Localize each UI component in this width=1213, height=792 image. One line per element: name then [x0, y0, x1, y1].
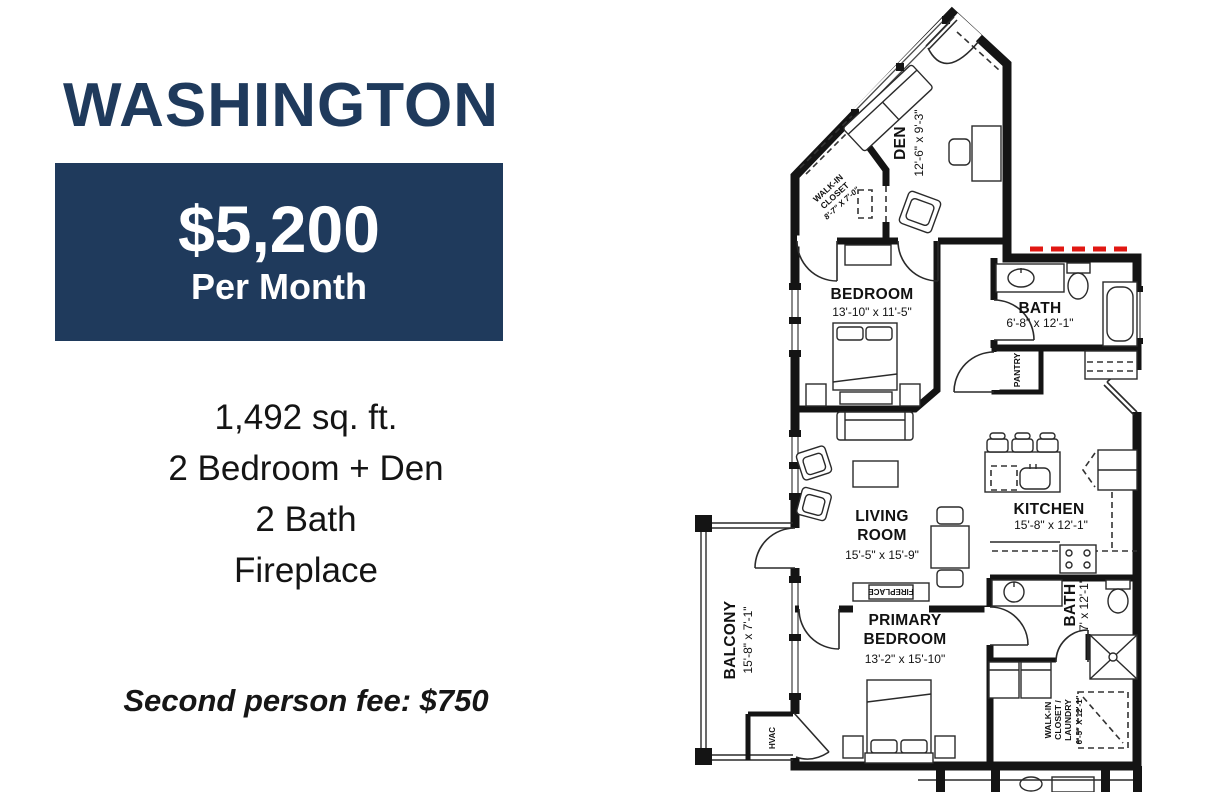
- coffee-table: [853, 461, 898, 487]
- laundry-closet-door: [1056, 630, 1088, 662]
- svg-text:15'-5" x 15'-9": 15'-5" x 15'-9": [845, 548, 919, 562]
- floor-plan: WALK-IN CLOSET 8'-7" X 7'-0" DEN 12'-6" …: [0, 0, 1213, 792]
- bedroom-bed: [833, 323, 897, 404]
- svg-text:WALK-IN: WALK-IN: [1043, 702, 1053, 739]
- svg-text:BALCONY: BALCONY: [722, 600, 739, 679]
- svg-text:LAUNDRY: LAUNDRY: [1063, 699, 1073, 741]
- balcony-door: [755, 528, 795, 568]
- primary-nightstand-right: [935, 736, 955, 758]
- bedroom-dresser: [845, 245, 891, 265]
- svg-text:CLOSET /: CLOSET /: [1053, 700, 1063, 740]
- primary-bedroom-label: PRIMARY BEDROOM 13'-2" x 15'-10": [863, 612, 946, 666]
- living-armchair-1: [795, 445, 832, 481]
- bath2-vanity: [992, 580, 1062, 606]
- washer-dryer: [989, 662, 1051, 698]
- svg-text:FIREPLACE: FIREPLACE: [868, 587, 914, 596]
- laundry-shelves: [1078, 692, 1128, 748]
- svg-text:LIVING: LIVING: [855, 508, 908, 525]
- kitchen-stools: [987, 433, 1058, 452]
- svg-text:15'-8" x 7'-1": 15'-8" x 7'-1": [741, 606, 755, 673]
- primary-nightstand-left: [843, 736, 863, 758]
- primary-bath-door: [990, 607, 1028, 645]
- bath1-toilet: [1067, 263, 1090, 299]
- bedroom-nightstand-left: [806, 384, 826, 406]
- bathtub: [1103, 282, 1137, 346]
- kitchen-label: KITCHEN 15'-8" x 12'-1": [1014, 501, 1088, 532]
- refrigerator: [1098, 450, 1137, 490]
- dining-table: [931, 507, 969, 587]
- stove: [1060, 545, 1096, 573]
- svg-text:15'-8" x 12'-1": 15'-8" x 12'-1": [1014, 518, 1088, 532]
- den-desk: [949, 126, 1001, 181]
- den-door: [898, 241, 938, 281]
- svg-text:BEDROOM: BEDROOM: [830, 286, 913, 303]
- wic-laundry-label: WALK-IN CLOSET / LAUNDRY 6'-5" X 12'-1": [1043, 695, 1084, 744]
- svg-text:KITCHEN: KITCHEN: [1014, 501, 1085, 518]
- walk-in-closet-label: WALK-IN CLOSET 8'-7" X 7'-0": [808, 169, 861, 221]
- svg-text:PANTRY: PANTRY: [1012, 353, 1022, 388]
- bedroom-nightstand-right: [900, 384, 920, 406]
- bath1-label: BATH 6'-8" x 12'-1": [1006, 300, 1073, 330]
- living-room-label: LIVING ROOM 15'-5" x 15'-9": [845, 508, 919, 562]
- den-chair: [898, 190, 942, 234]
- svg-text:6'-8" x 12'-1": 6'-8" x 12'-1": [1006, 316, 1073, 330]
- svg-text:BEDROOM: BEDROOM: [863, 631, 946, 648]
- pantry-door: [954, 352, 994, 392]
- kitchen-cabinet-dashes: [1083, 453, 1095, 487]
- bedroom-door: [797, 241, 837, 281]
- hvac-label: HVAC: [768, 727, 777, 749]
- living-armchair-2: [796, 487, 832, 522]
- bath1-vanity: [996, 264, 1064, 292]
- bath2-toilet: [1106, 580, 1130, 613]
- svg-text:7' x 12'-1": 7' x 12'-1": [1077, 579, 1091, 631]
- svg-text:ROOM: ROOM: [857, 527, 906, 544]
- pantry-label: PANTRY: [1012, 353, 1022, 388]
- living-sofa: [837, 412, 913, 440]
- entry-coat-closet: [1085, 351, 1137, 379]
- svg-text:DEN: DEN: [892, 126, 909, 160]
- svg-text:13'-10" x 11'-5": 13'-10" x 11'-5": [832, 305, 912, 319]
- svg-text:BATH: BATH: [1018, 300, 1061, 317]
- primary-bedroom-door: [799, 609, 839, 649]
- shower: [1090, 635, 1137, 679]
- balcony-label: BALCONY 15'-8" x 7'-1": [722, 600, 755, 679]
- interior-walls: [795, 120, 1137, 766]
- svg-text:HVAC: HVAC: [768, 727, 777, 749]
- svg-text:13'-2" x 15'-10": 13'-2" x 15'-10": [865, 652, 945, 666]
- svg-text:6'-5" X 12'-1": 6'-5" X 12'-1": [1075, 695, 1084, 744]
- bath2-label: BATH 7' x 12'-1": [1062, 579, 1091, 631]
- kitchen-island: [985, 452, 1060, 492]
- svg-text:12'-6" x 9'-3": 12'-6" x 9'-3": [912, 109, 926, 176]
- primary-bed: [865, 680, 933, 763]
- bedroom-label: BEDROOM 13'-10" x 11'-5": [830, 286, 913, 319]
- svg-text:PRIMARY: PRIMARY: [868, 612, 941, 629]
- fireplace-label: FIREPLACE: [868, 587, 914, 596]
